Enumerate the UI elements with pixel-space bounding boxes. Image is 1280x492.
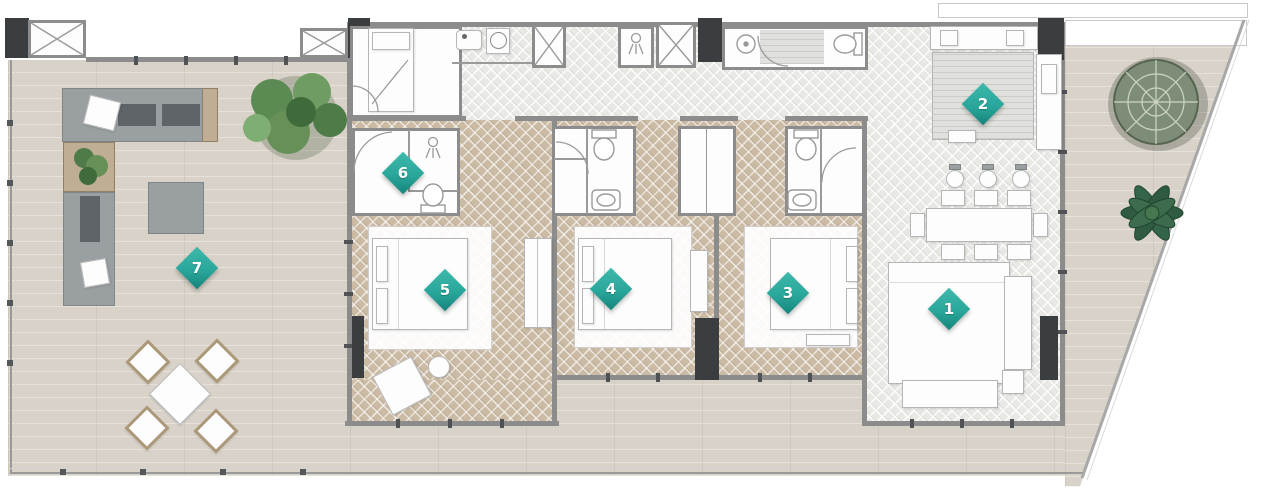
window-mullion xyxy=(448,419,452,428)
window-mullion xyxy=(344,292,353,296)
balustrade-post xyxy=(7,360,13,366)
wall-bedroom4-3 xyxy=(714,216,719,322)
bed-pillow xyxy=(376,288,388,324)
balustrade-post xyxy=(300,469,306,475)
wall-corridor xyxy=(680,116,738,121)
marker-number: 7 xyxy=(182,253,212,283)
bed-pillow xyxy=(846,288,858,324)
balustrade-post xyxy=(60,469,66,475)
side-table xyxy=(1002,370,1024,394)
bar-stool xyxy=(979,170,997,188)
window-mullion xyxy=(1010,419,1014,428)
shower-stall xyxy=(618,26,654,68)
window-mullion xyxy=(396,419,400,428)
window-mullion xyxy=(184,56,188,65)
sofa-side-panel xyxy=(202,88,218,142)
room-marker-6: 6 xyxy=(382,152,424,194)
room-marker-2: 2 xyxy=(962,83,1004,125)
room-marker-1: 1 xyxy=(928,288,970,330)
room-marker-3: 3 xyxy=(767,272,809,314)
marker-number: 6 xyxy=(388,158,418,188)
dining-chair xyxy=(1007,190,1031,206)
terrace-right-floor xyxy=(1065,20,1248,490)
window-mullion xyxy=(606,373,610,382)
window-mullion xyxy=(284,56,288,65)
window-mullion xyxy=(500,419,504,428)
window-mullion xyxy=(758,373,762,382)
bed-pillow xyxy=(372,32,410,50)
marker-number: 1 xyxy=(934,294,964,324)
bed-pillow xyxy=(582,246,594,282)
bathroom-3 xyxy=(785,126,865,216)
bar-stool xyxy=(1012,170,1030,188)
balustrade-post xyxy=(7,300,13,306)
dining-chair xyxy=(941,244,965,260)
duvet-line xyxy=(830,239,831,329)
balustrade-post xyxy=(7,180,13,186)
dining-table xyxy=(926,208,1032,242)
window-wall-bedroom5 xyxy=(345,421,559,426)
window-mullion xyxy=(960,419,964,428)
ottoman xyxy=(148,182,204,234)
wall-corridor xyxy=(785,116,868,121)
roof-ledge-top xyxy=(938,3,1248,18)
tv-unit-living xyxy=(1040,316,1058,380)
throw-blanket xyxy=(80,258,110,288)
bed-pillow xyxy=(846,246,858,282)
shaft-box xyxy=(300,28,348,58)
dining-chair xyxy=(1033,213,1048,237)
bath4-partition xyxy=(554,158,588,160)
washer-drum-icon xyxy=(490,32,507,49)
wall-corridor xyxy=(515,116,638,121)
balustrade-post xyxy=(7,240,13,246)
laundry-sink xyxy=(456,30,482,50)
floor-plan: 1 2 3 4 5 6 7 xyxy=(0,0,1280,492)
sofa-cushion-line xyxy=(888,282,1010,283)
bar-stool xyxy=(946,170,964,188)
round-side-table xyxy=(428,356,450,378)
bath4-partition xyxy=(586,128,588,214)
balustrade-left-inner xyxy=(15,60,16,470)
column xyxy=(5,18,29,58)
living-bench xyxy=(902,380,998,408)
column xyxy=(698,18,722,62)
wardrobe-divider xyxy=(706,128,707,214)
faucet-icon xyxy=(462,34,467,39)
corner-table xyxy=(63,142,115,192)
window-mullion xyxy=(234,56,238,65)
window-mullion xyxy=(344,240,353,244)
bed-bench xyxy=(806,334,850,346)
dining-chair xyxy=(974,244,998,260)
window-mullion xyxy=(1058,150,1067,154)
duvet-line xyxy=(398,239,399,329)
marker-number: 2 xyxy=(968,89,998,119)
island-sink xyxy=(948,130,976,143)
laundry-counter xyxy=(452,62,536,64)
window-mullion xyxy=(1058,270,1067,274)
window-mullion xyxy=(1058,330,1067,334)
shaft-box xyxy=(532,24,566,68)
balustrade-bottom-inner xyxy=(10,468,1080,469)
marker-number: 3 xyxy=(773,278,803,308)
marker-number: 4 xyxy=(596,274,626,304)
marker-number: 5 xyxy=(430,275,460,305)
window-mullion xyxy=(656,373,660,382)
wardrobe-bedroom5 xyxy=(524,238,552,328)
room-marker-4: 4 xyxy=(590,268,632,310)
dining-chair xyxy=(910,213,925,237)
kitchen-appliance xyxy=(1006,30,1024,46)
balustrade-bottom xyxy=(10,472,1083,474)
balustrade-post xyxy=(7,120,13,126)
room-marker-5: 5 xyxy=(424,269,466,311)
dining-chair xyxy=(941,190,965,206)
balustrade-post xyxy=(140,469,146,475)
kitchen-appliance xyxy=(940,30,958,46)
shaft-box xyxy=(656,22,696,68)
wardrobe-divider xyxy=(537,239,538,327)
bath6-partition xyxy=(408,190,458,192)
window-mullion xyxy=(808,373,812,382)
living-chaise xyxy=(1004,276,1032,370)
guest-shower-area xyxy=(760,30,824,64)
balustrade-post xyxy=(220,469,226,475)
column xyxy=(695,318,719,380)
cooktop xyxy=(1041,64,1057,94)
hall-wardrobe xyxy=(678,126,736,216)
roof-ledge-right xyxy=(1065,20,1247,46)
sofa-cushion xyxy=(80,196,100,242)
dining-chair xyxy=(1007,244,1031,260)
dresser-bedroom4 xyxy=(690,250,708,312)
sofa-cushion xyxy=(118,104,156,126)
window-mullion xyxy=(1058,210,1067,214)
tv-unit-bedroom5 xyxy=(352,316,364,378)
bed-pillow xyxy=(376,246,388,282)
bath3-partition xyxy=(820,128,822,214)
shaft-box xyxy=(28,20,86,58)
room-marker-7: 7 xyxy=(176,247,218,289)
window-mullion xyxy=(134,56,138,65)
bed-pillow xyxy=(582,288,594,324)
bathroom-4 xyxy=(552,126,636,216)
sofa-cushion xyxy=(162,104,200,126)
window-mullion xyxy=(910,419,914,428)
dining-chair xyxy=(974,190,998,206)
